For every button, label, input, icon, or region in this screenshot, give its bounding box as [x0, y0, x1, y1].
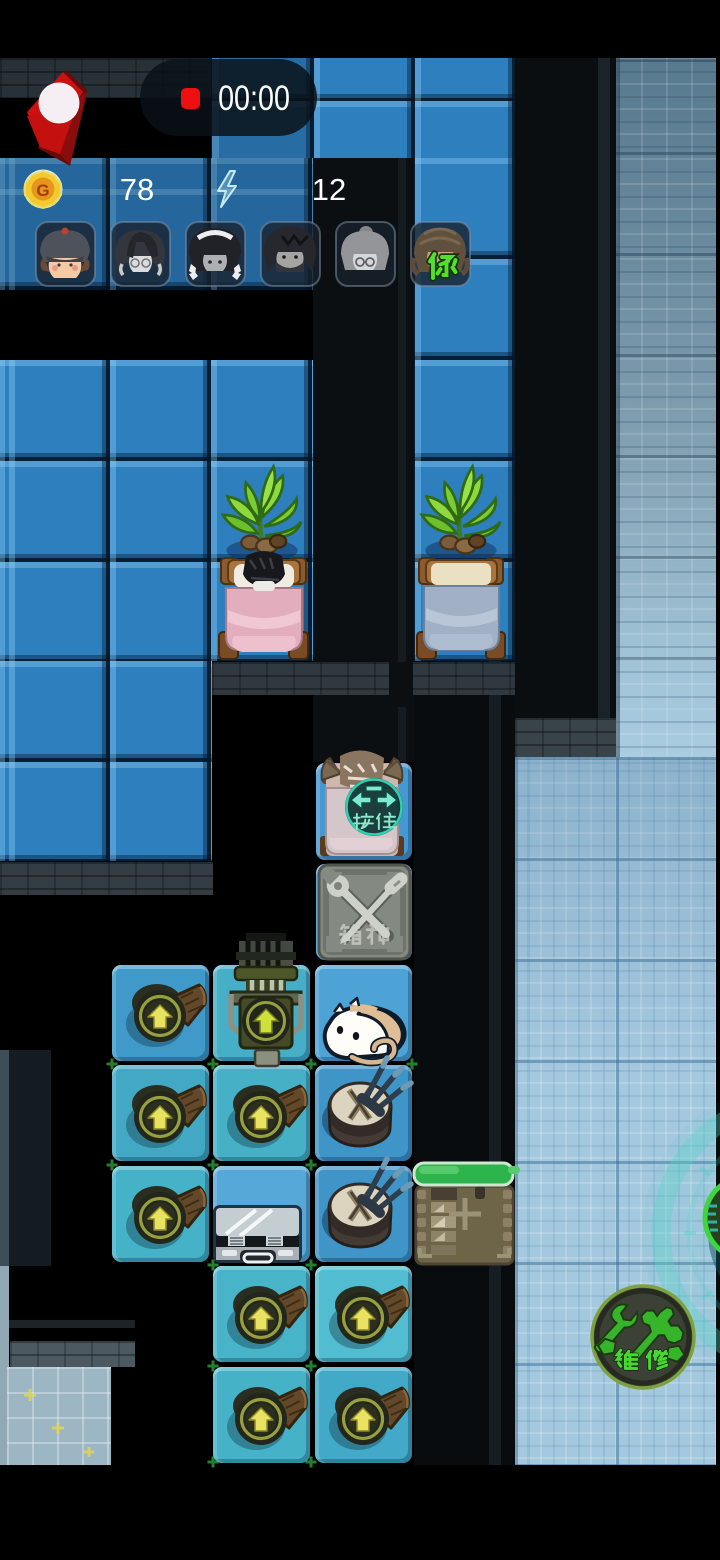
svg-text:G: G — [36, 181, 49, 200]
